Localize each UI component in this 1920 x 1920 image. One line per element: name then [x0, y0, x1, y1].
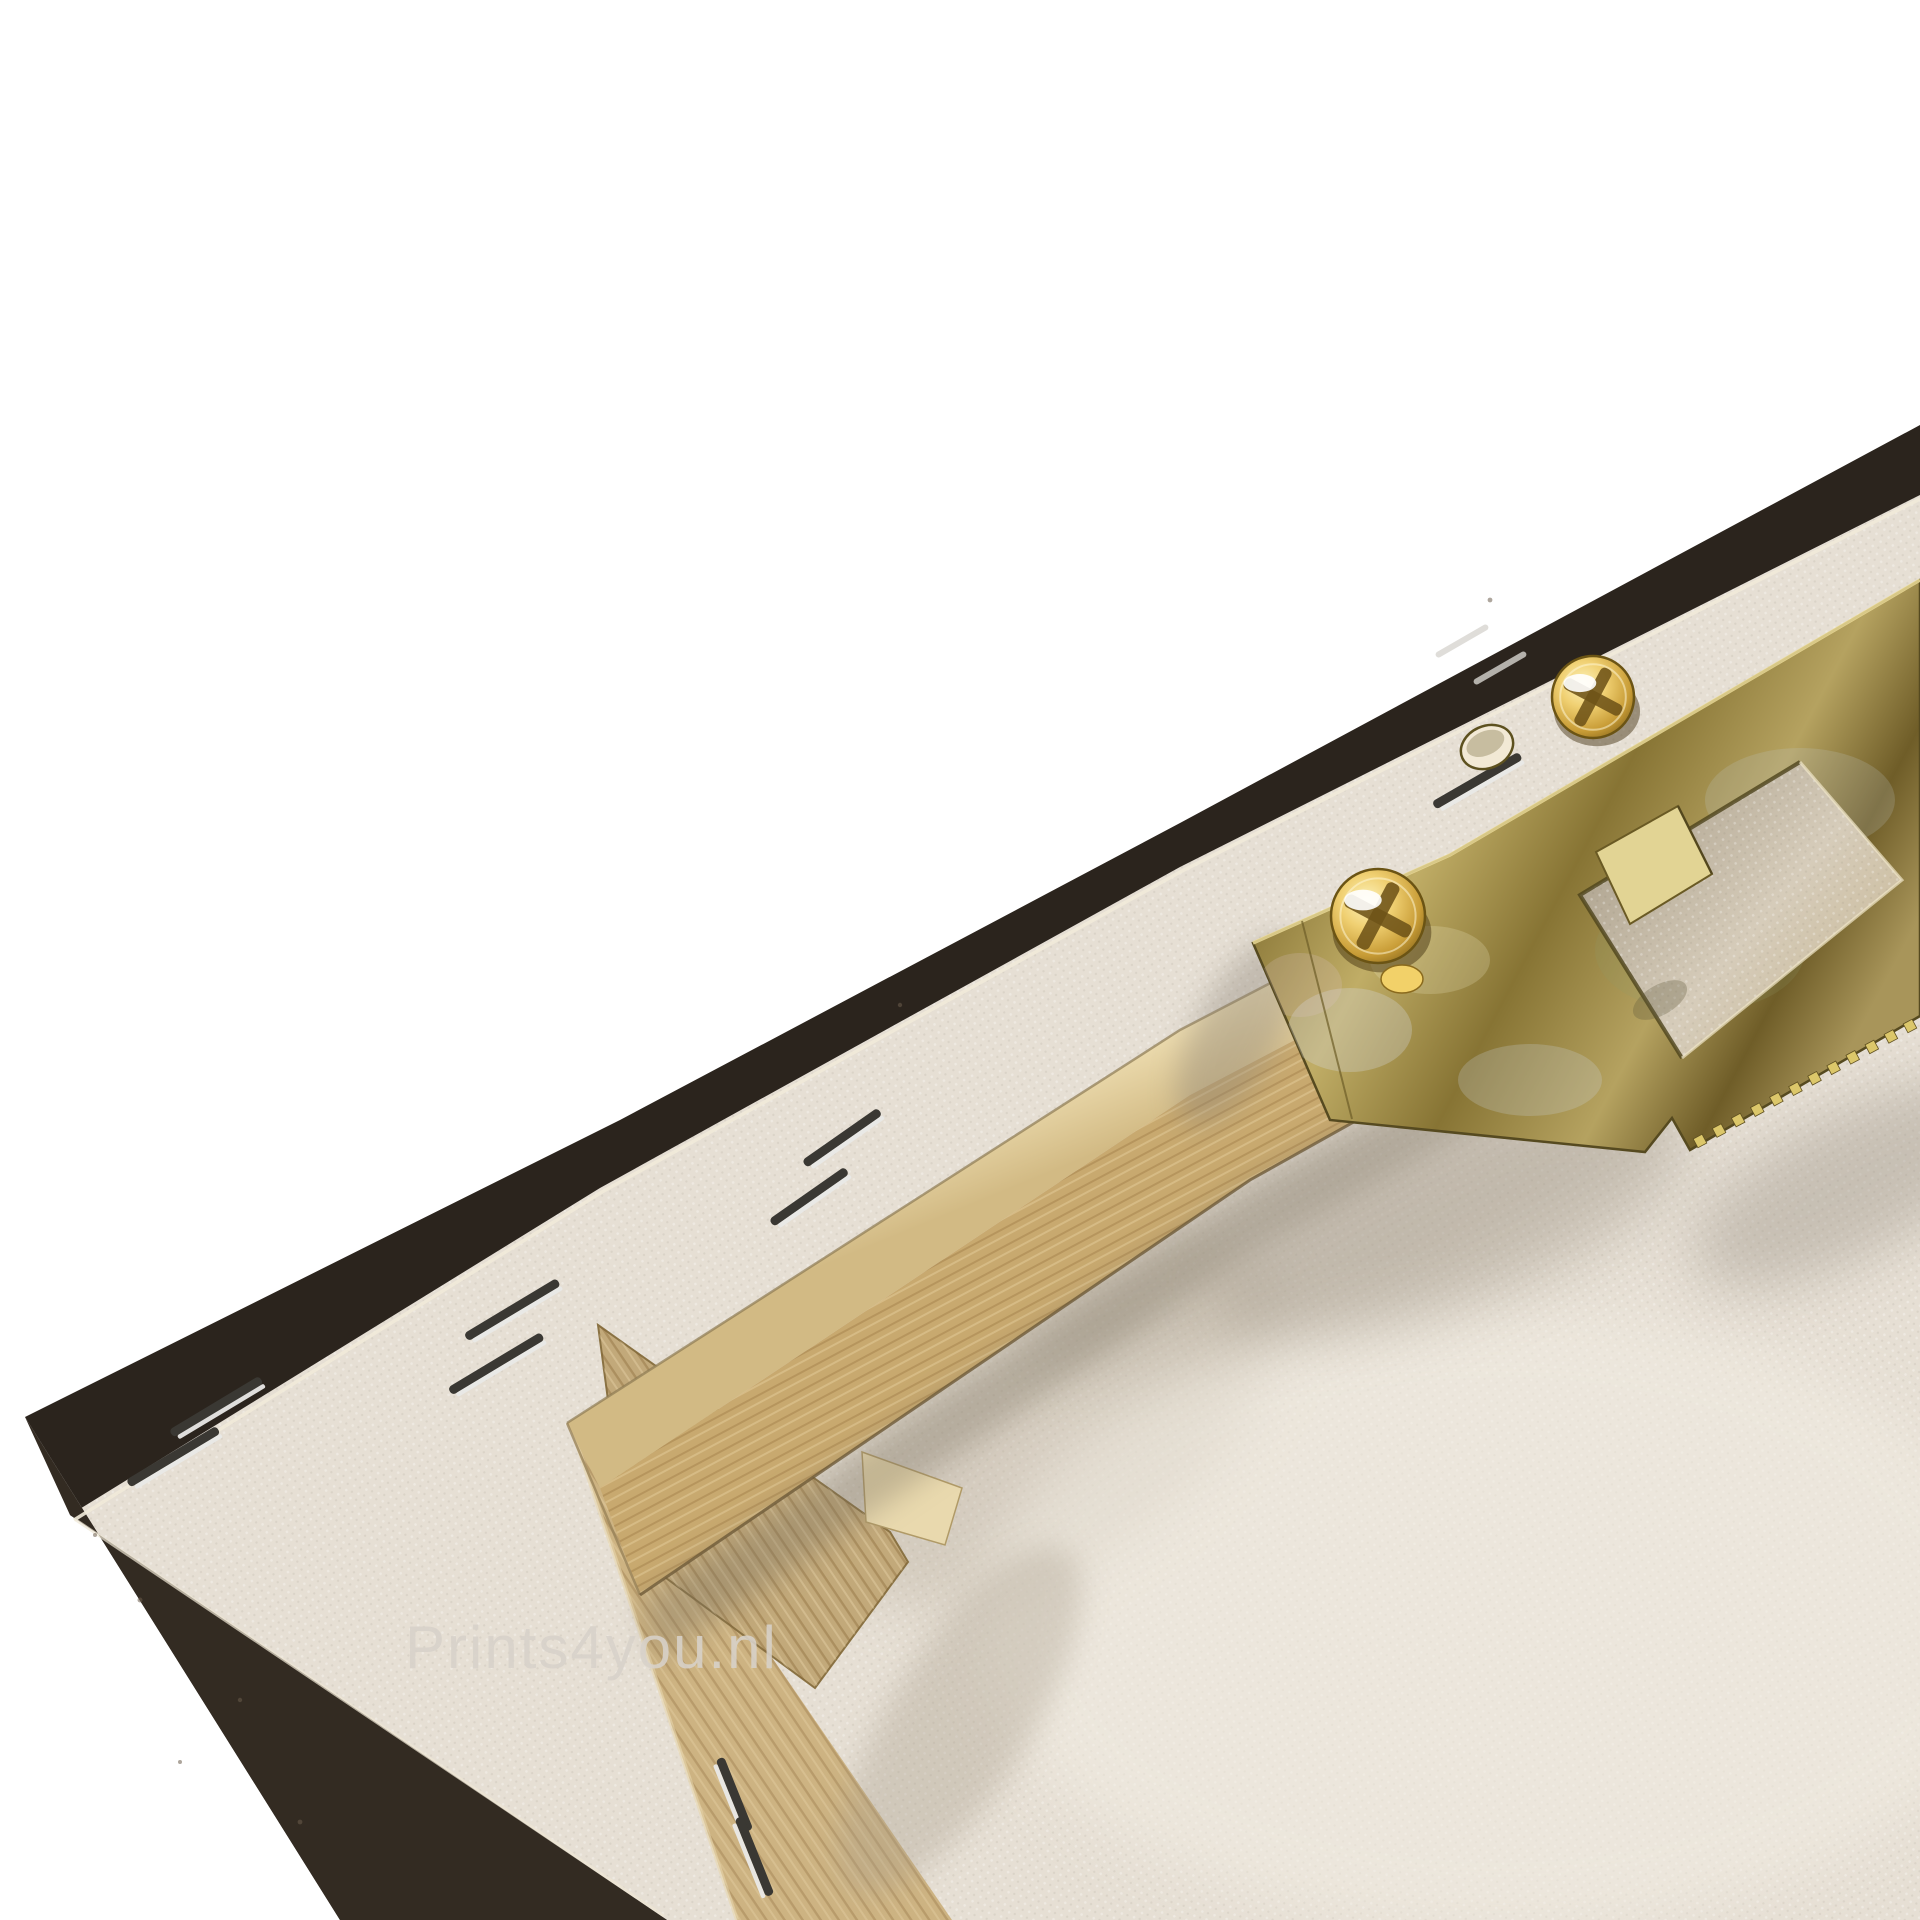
lacquer-drip — [1381, 965, 1423, 993]
watermark: Prints4you.nl — [405, 1614, 778, 1681]
product-photo: Prints4you.nl — [0, 0, 1920, 1920]
canvas-print-back-photo: Prints4you.nl — [0, 0, 1920, 1920]
